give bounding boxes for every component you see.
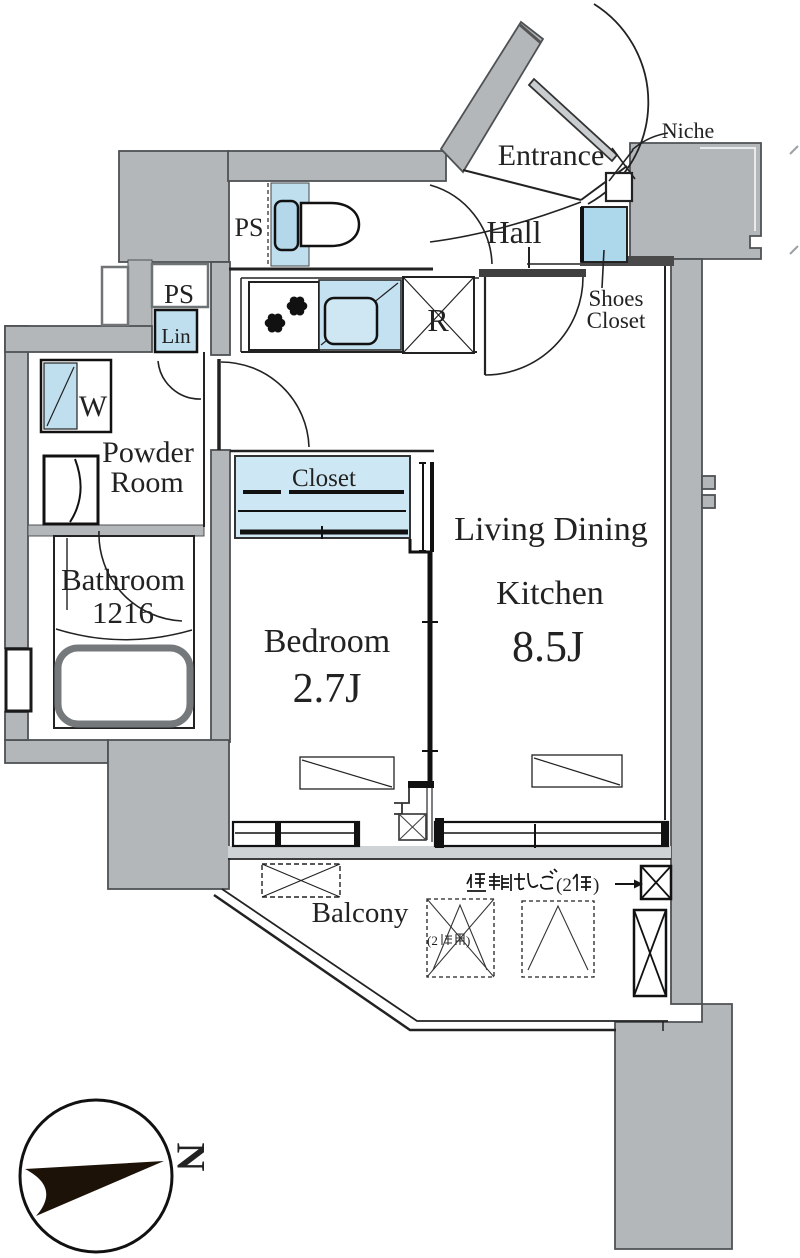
svg-text:): ) [466, 933, 470, 948]
svg-text:R: R [427, 302, 449, 338]
svg-text:Closet: Closet [292, 465, 356, 492]
svg-text:2.7J: 2.7J [293, 666, 362, 712]
svg-text:Room: Room [110, 466, 183, 499]
svg-text:PS: PS [164, 279, 194, 309]
svg-text:Living Dining: Living Dining [454, 511, 648, 548]
svg-text:(2: (2 [427, 933, 438, 948]
svg-text:(2: (2 [556, 875, 572, 896]
svg-text:Powder: Powder [102, 436, 194, 469]
svg-text:Entrance: Entrance [498, 139, 605, 172]
svg-text:8.5J: 8.5J [512, 622, 584, 671]
svg-text:Kitchen: Kitchen [496, 575, 604, 612]
svg-text:1216: 1216 [92, 595, 154, 630]
svg-text:Bedroom: Bedroom [264, 623, 391, 660]
svg-text:Closet: Closet [587, 308, 646, 333]
svg-text:Hall: Hall [486, 214, 541, 250]
svg-text:W: W [79, 390, 108, 423]
svg-text:Lin: Lin [161, 324, 191, 348]
svg-text:Balcony: Balcony [312, 897, 409, 929]
svg-text:Bathroom: Bathroom [61, 562, 185, 597]
svg-text:): ) [593, 875, 599, 896]
svg-text:PS: PS [235, 213, 264, 242]
svg-text:Niche: Niche [662, 118, 715, 143]
svg-text:N: N [169, 1143, 214, 1172]
